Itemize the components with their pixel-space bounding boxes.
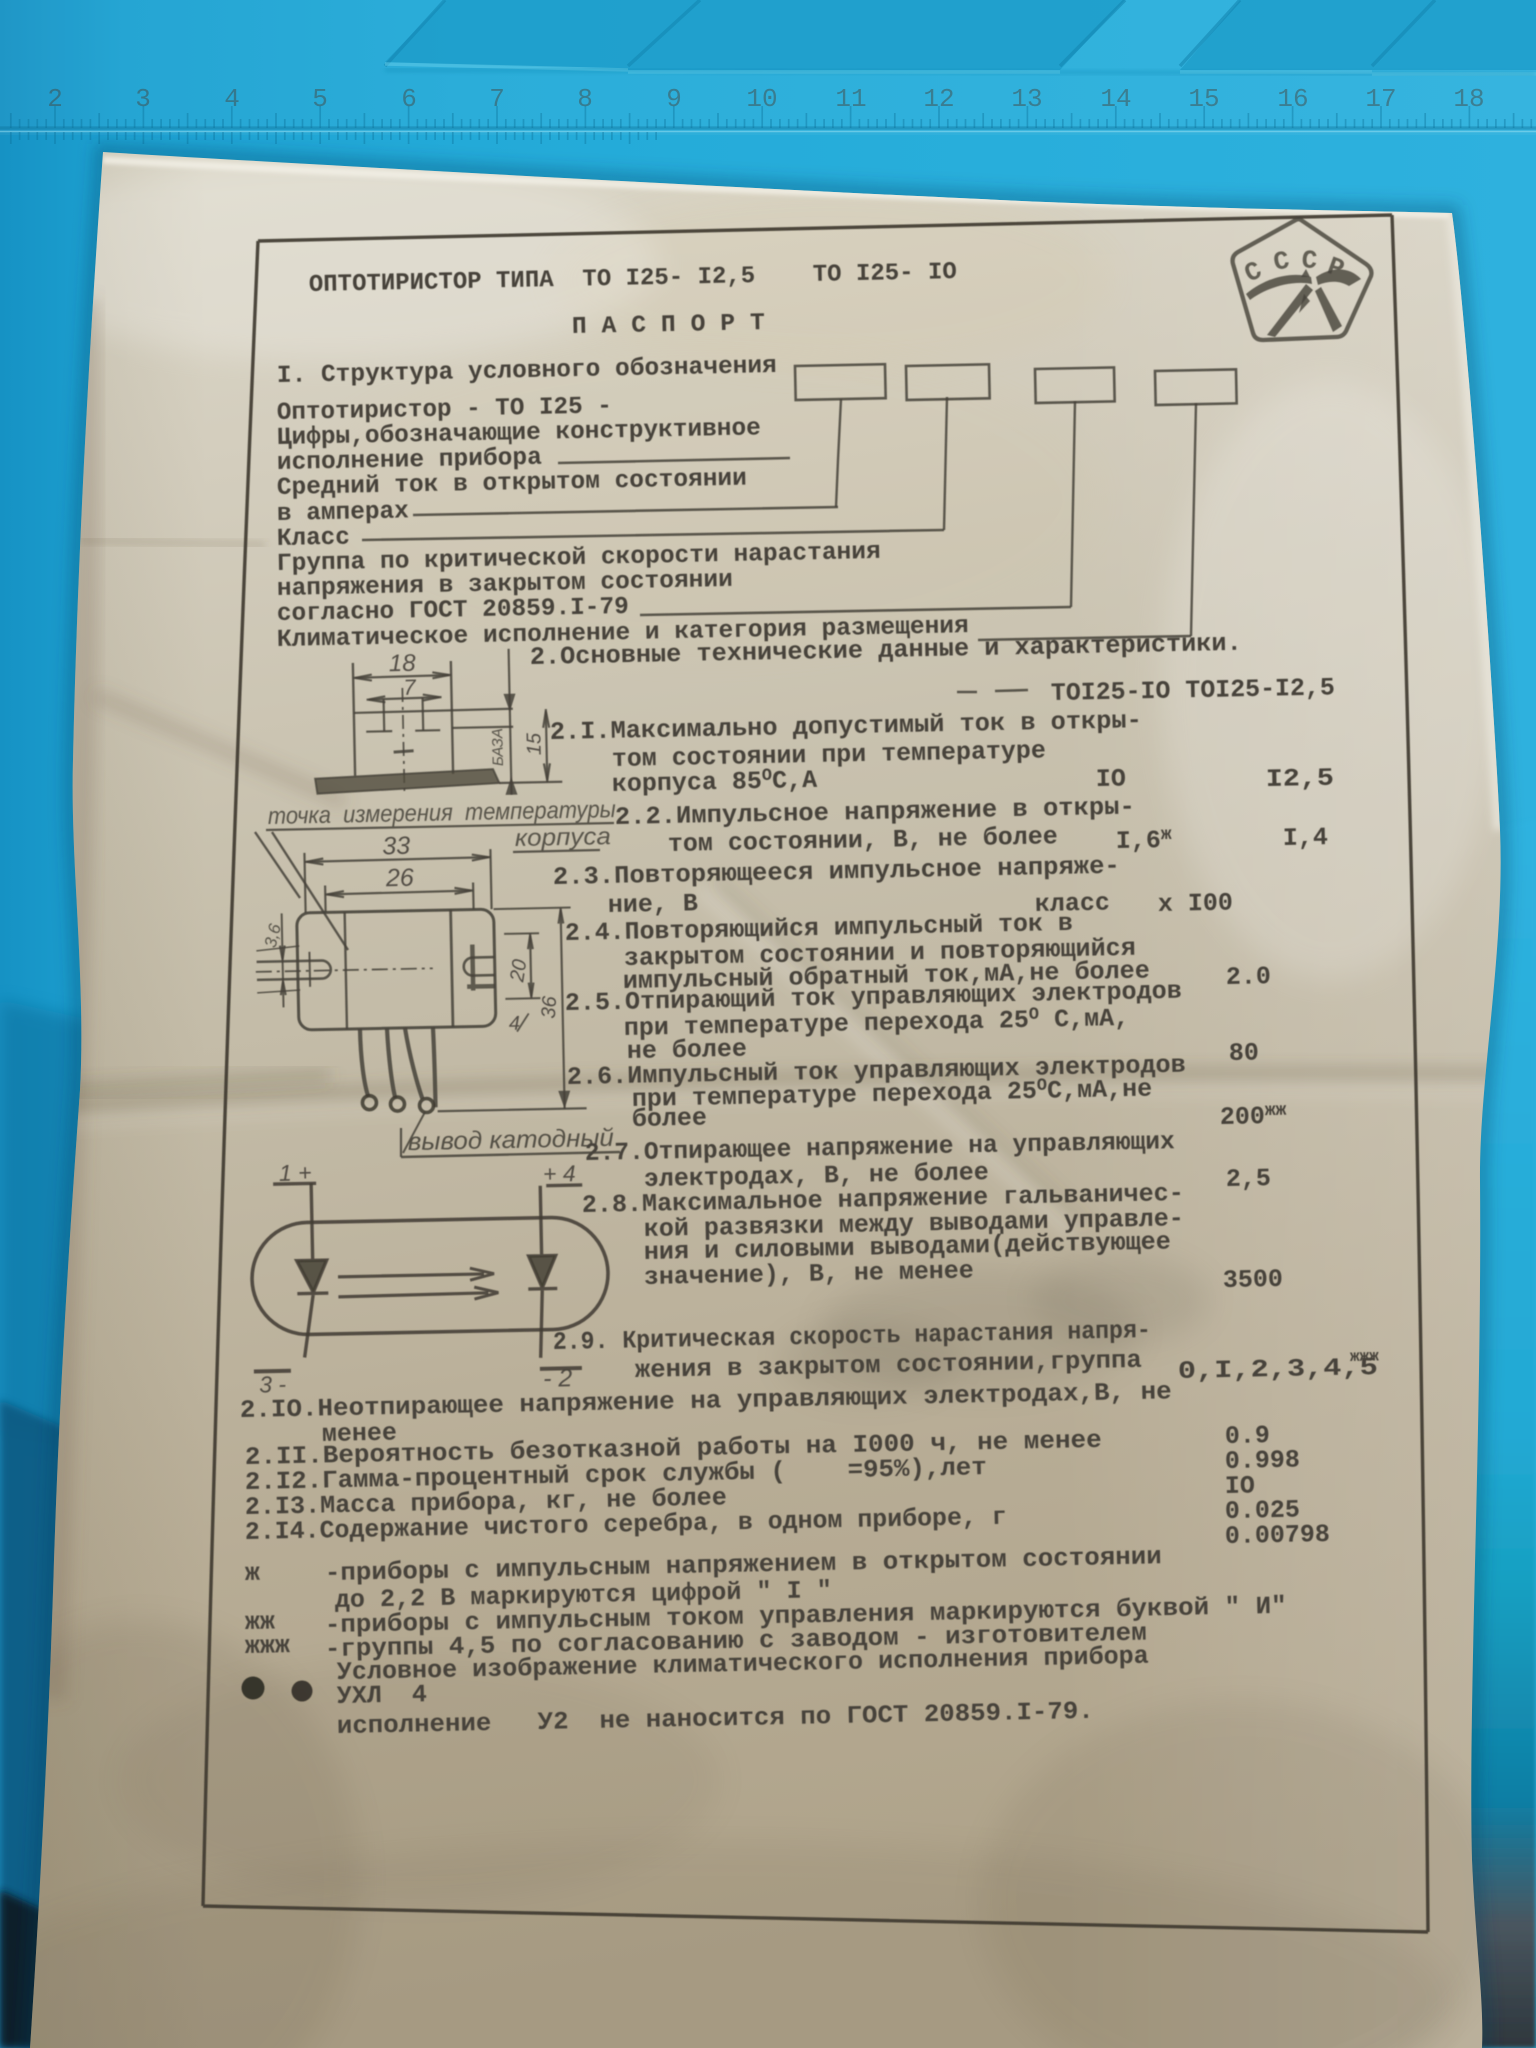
svg-text:х I00: х I00 xyxy=(1158,888,1234,918)
svg-text:вывод катодный: вывод катодный xyxy=(408,1124,615,1156)
svg-text:ж: ж xyxy=(245,1559,261,1588)
svg-text:I,4: I,4 xyxy=(1283,823,1329,853)
svg-text:1 +: 1 + xyxy=(279,1159,312,1186)
svg-text:БАЗА: БАЗА xyxy=(489,728,507,766)
svg-text:16: 16 xyxy=(1277,84,1308,114)
svg-text:80: 80 xyxy=(1229,1038,1260,1068)
svg-text:корпуса: корпуса xyxy=(515,823,612,852)
svg-text:7: 7 xyxy=(403,675,416,700)
svg-text:корпуса 85ОС,А: корпуса 85ОС,А xyxy=(612,766,818,799)
svg-text:2: 2 xyxy=(47,84,63,114)
svg-text:14: 14 xyxy=(1100,84,1131,114)
svg-text:С: С xyxy=(1300,245,1318,276)
svg-text:17: 17 xyxy=(1365,84,1396,114)
svg-text:жжж: жжж xyxy=(1350,1347,1380,1366)
svg-text:0,I,2,3,4,5: 0,I,2,3,4,5 xyxy=(1178,1353,1379,1386)
svg-text:I2,5: I2,5 xyxy=(1266,764,1335,794)
svg-text:20: 20 xyxy=(506,958,531,984)
svg-text:IО: IО xyxy=(1096,764,1127,794)
svg-text:8: 8 xyxy=(577,84,593,114)
svg-text:33: 33 xyxy=(382,832,410,861)
svg-text:36: 36 xyxy=(538,995,562,1020)
svg-text:6: 6 xyxy=(401,84,417,114)
svg-text:УХЛ 4: УХЛ 4 xyxy=(337,1680,428,1711)
svg-text:18: 18 xyxy=(389,650,417,678)
svg-text:+ 4: + 4 xyxy=(543,1160,576,1187)
svg-text:26: 26 xyxy=(385,864,414,893)
svg-text:Класс: Класс xyxy=(277,525,351,553)
svg-text:ТОI25-IО ТОI25-I2,5: ТОI25-IО ТОI25-I2,5 xyxy=(1051,673,1336,708)
svg-text:5: 5 xyxy=(312,84,328,114)
svg-text:ние, В: ние, В xyxy=(608,889,699,920)
svg-text:12: 12 xyxy=(923,84,954,114)
svg-text:4: 4 xyxy=(509,1013,521,1035)
svg-text:9: 9 xyxy=(666,84,682,114)
svg-text:более: более xyxy=(632,1103,708,1133)
svg-text:13: 13 xyxy=(1011,84,1042,114)
svg-text:10: 10 xyxy=(746,84,777,114)
svg-text:15: 15 xyxy=(523,732,545,756)
svg-text:0.00798: 0.00798 xyxy=(1225,1520,1331,1551)
svg-text:18: 18 xyxy=(1453,84,1484,114)
svg-text:11: 11 xyxy=(835,84,866,114)
svg-text:в амперах: в амперах xyxy=(277,498,410,528)
svg-text:жжж: жжж xyxy=(245,1631,291,1661)
svg-text:3500: 3500 xyxy=(1223,1265,1284,1295)
svg-text:2.0: 2.0 xyxy=(1226,962,1272,992)
svg-text:3: 3 xyxy=(135,84,151,114)
svg-text:15: 15 xyxy=(1188,84,1219,114)
svg-text:3 -: 3 - xyxy=(259,1371,287,1398)
svg-text:7: 7 xyxy=(489,84,505,114)
svg-text:2,5: 2,5 xyxy=(1226,1164,1272,1194)
svg-text:П А С П О Р Т: П А С П О Р Т xyxy=(572,310,766,341)
svg-text:4: 4 xyxy=(224,84,240,114)
